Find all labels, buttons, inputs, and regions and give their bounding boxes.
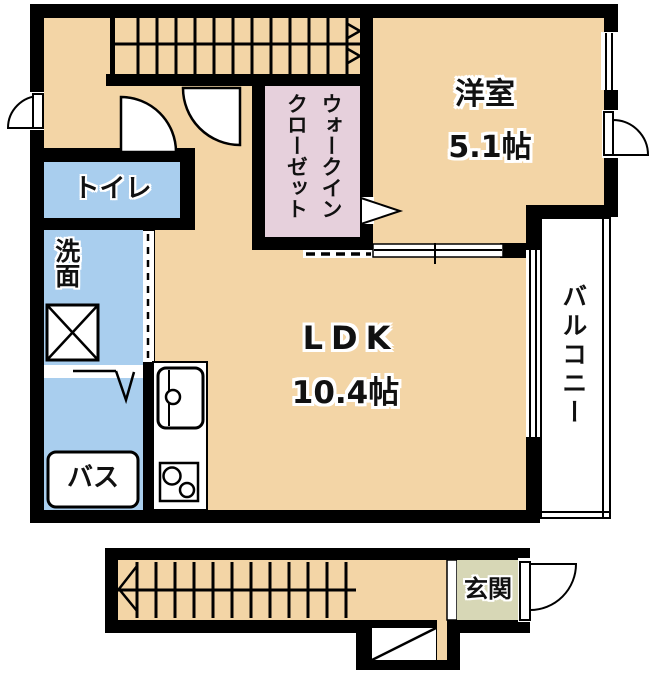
kitchen-counter [153, 362, 207, 510]
wall-stairs-bottom [106, 74, 373, 86]
wall-partition-east [500, 243, 528, 258]
door-washroom-sliding [143, 231, 154, 362]
wall-south [30, 510, 540, 523]
bath-label: バス [53, 464, 133, 494]
western-room-size: 5.1帖 [425, 131, 555, 166]
door-entrance [518, 558, 576, 622]
window-western-room [601, 32, 618, 90]
walk-in-closet-label: ウォークイン クローゼット [276, 93, 348, 243]
ldk-size: 10.4帖 [268, 376, 423, 412]
door-western-exterior [602, 110, 648, 158]
floor-plan: 洋室 5.1帖 LDK 10.4帖 トイレ 洗面 バス ウォークイン クローゼッ… [0, 0, 651, 675]
wall-wic-right-lower [360, 223, 373, 250]
kitchen-sink-icon [158, 368, 203, 428]
window-ldk-balcony [526, 250, 540, 437]
washroom-label: 洗面 [51, 238, 80, 308]
door-wic-folding [303, 250, 373, 258]
washing-machine-icon [47, 305, 98, 360]
western-room-label: 洋室 [425, 78, 545, 113]
door-hall-exterior [8, 92, 44, 130]
wall-toilet-bottom [44, 218, 195, 230]
door-arc-western-icon [613, 120, 648, 155]
ldk-label: LDK [278, 320, 423, 357]
balcony-label: バルコニー [558, 283, 587, 473]
entrance-label: 玄関 [453, 576, 523, 604]
wall-wic-right-upper [360, 18, 373, 197]
door-arc-entrance-icon [530, 564, 576, 610]
stove-icon [160, 463, 198, 501]
wall-wic-left [252, 86, 265, 250]
toilet-label: トイレ [60, 175, 165, 205]
wall-balcony-top [528, 205, 612, 217]
wall-toilet-right [180, 148, 195, 230]
